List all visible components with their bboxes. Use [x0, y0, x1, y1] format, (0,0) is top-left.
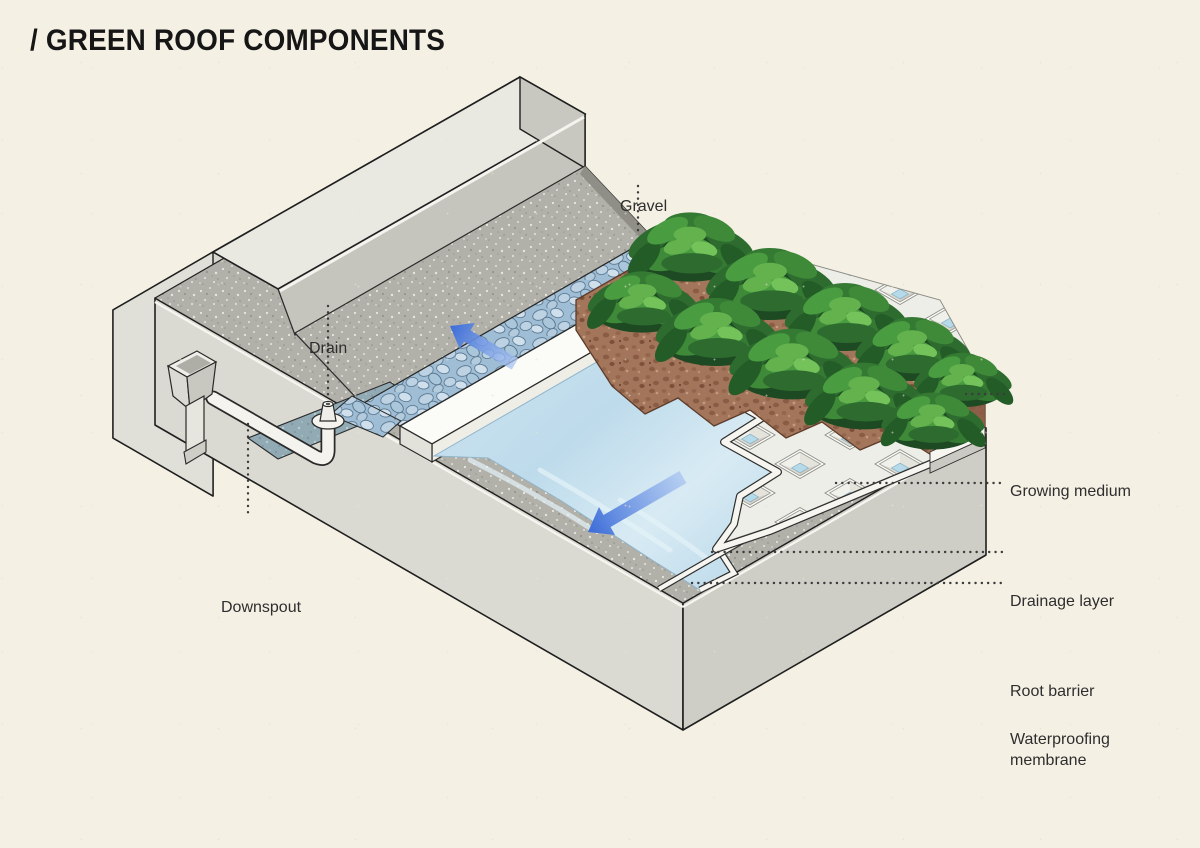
label-gravel: Gravel — [620, 196, 1200, 217]
green-roof-cutaway-illustration — [0, 0, 1200, 848]
label-drainage-layer: Drainage layer — [1010, 591, 1200, 612]
label-growing-medium: Growing medium — [1010, 481, 1200, 502]
label-waterproofing-membrane: Waterproofing membrane — [1010, 729, 1142, 771]
label-root-barrier: Root barrier — [1010, 681, 1200, 702]
infographic-poster: / GREEN ROOF COMPONENTS Gravel Drain Dow… — [0, 0, 1200, 848]
page-title: / GREEN ROOF COMPONENTS — [30, 24, 1146, 58]
label-drain: Drain — [309, 338, 1200, 359]
